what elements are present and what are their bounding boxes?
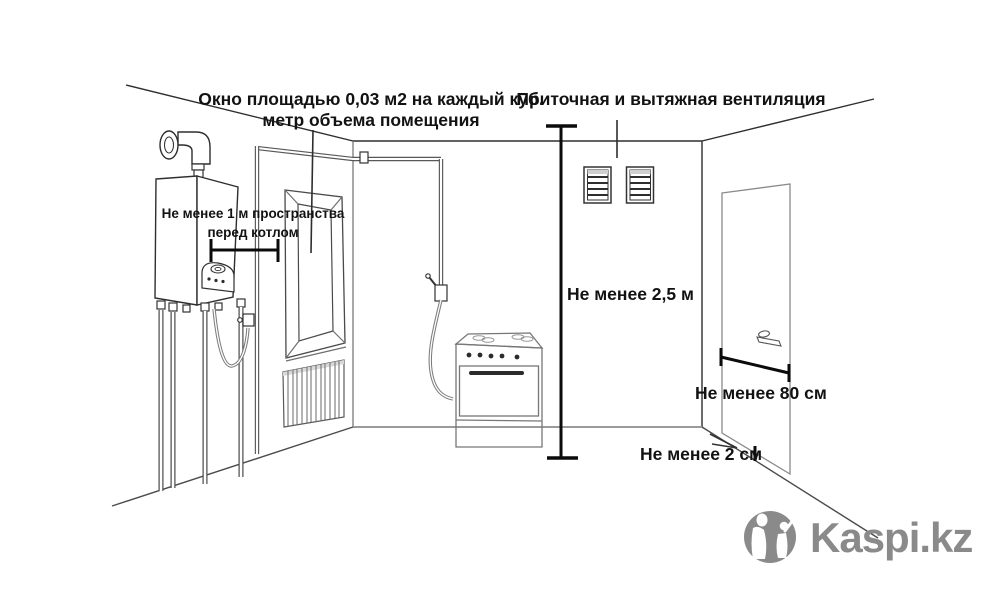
window-note-line2: метр объема помещения bbox=[262, 110, 479, 130]
radiator bbox=[283, 360, 344, 427]
window-inner-frame bbox=[298, 204, 333, 341]
ventilation-note: Приточная и вытяжная вентиляция bbox=[516, 89, 825, 109]
boiler-front-face bbox=[155, 176, 197, 305]
flue-pipe bbox=[160, 131, 210, 179]
boiler-clearance-line2: перед котлом bbox=[207, 225, 298, 240]
gas-boiler bbox=[155, 131, 245, 312]
boiler-dial bbox=[211, 265, 225, 273]
door-leaf bbox=[722, 184, 790, 474]
stove-knobs bbox=[467, 353, 520, 360]
panel-knob bbox=[221, 280, 224, 283]
boiler-gas-valve bbox=[243, 314, 254, 326]
window-note-line1: Окно площадью 0,03 м2 на каждый куб. bbox=[198, 89, 543, 109]
stove-top bbox=[456, 333, 542, 348]
stove-burners bbox=[473, 335, 533, 343]
boiler-control-panel bbox=[202, 263, 234, 292]
door bbox=[710, 184, 790, 474]
diagram-canvas: Окно площадью 0,03 м2 на каждый куб. мет… bbox=[0, 0, 1000, 600]
stove-gas-connection bbox=[426, 274, 453, 399]
ceiling-height-label: Не менее 2,5 м bbox=[567, 284, 694, 304]
kaspi-logo-text: Kaspi.kz bbox=[810, 514, 972, 561]
gas-pipe-horizontal bbox=[257, 148, 441, 159]
valve-knob bbox=[238, 318, 243, 323]
stove-front bbox=[456, 344, 542, 447]
boiler-clearance-line1: Не менее 1 м пространства bbox=[162, 206, 345, 221]
flue-collar bbox=[192, 164, 204, 170]
flue-flange-inner bbox=[165, 137, 174, 153]
valve-handle-knob bbox=[426, 274, 430, 278]
left-wall-floor-line bbox=[112, 427, 353, 506]
panel-knob bbox=[214, 279, 217, 282]
stove-gas-hose bbox=[430, 300, 453, 399]
leader-lines bbox=[311, 120, 617, 253]
oven-handle bbox=[469, 371, 524, 375]
supply-vent-grille bbox=[584, 167, 611, 203]
gas-stove bbox=[456, 333, 542, 447]
pipe-union-fitting bbox=[360, 152, 368, 163]
grille-shade bbox=[630, 170, 651, 174]
stove-gas-valve bbox=[435, 285, 447, 301]
boiler-pipes bbox=[161, 307, 254, 491]
kaspi-logo: Kaspi.kz bbox=[744, 511, 972, 563]
door-gap-label: Не менее 2 см bbox=[640, 444, 762, 464]
door-width-label: Не менее 80 см bbox=[695, 383, 827, 403]
ventilation-grilles bbox=[584, 167, 654, 203]
panel-knob bbox=[207, 277, 210, 280]
exhaust-vent-grille bbox=[627, 167, 654, 203]
grille-shade bbox=[588, 170, 609, 174]
boiler-installation-diagram: Окно площадью 0,03 м2 на каждый куб. мет… bbox=[0, 0, 1000, 600]
stove-drawer-line bbox=[456, 420, 542, 421]
